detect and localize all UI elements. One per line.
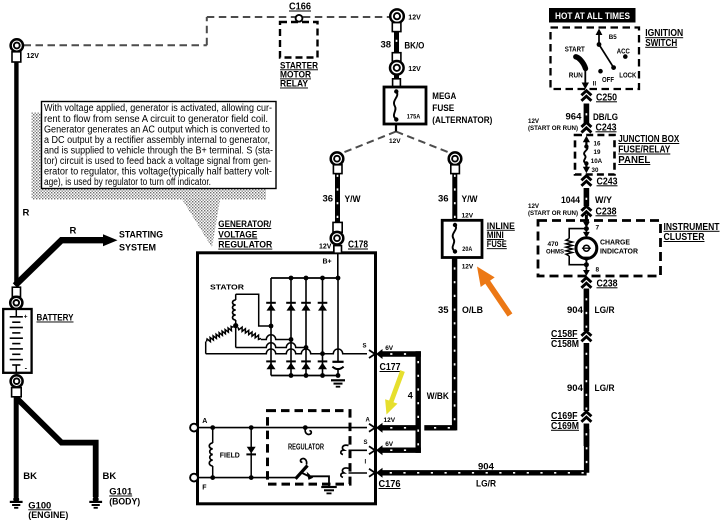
svg-text:(ENGINE): (ENGINE) [28, 510, 68, 521]
svg-text:REGULATOR: REGULATOR [288, 442, 324, 451]
svg-text:1044: 1044 [561, 195, 581, 206]
svg-text:C250: C250 [596, 92, 617, 103]
svg-text:(START OR RUN): (START OR RUN) [528, 125, 578, 132]
svg-text:LOCK: LOCK [619, 72, 636, 79]
svg-text:12V: 12V [408, 15, 421, 22]
svg-text:LG/R: LG/R [476, 478, 496, 489]
svg-text:STATOR: STATOR [210, 283, 245, 292]
svg-text:S: S [364, 440, 368, 446]
svg-text:(BODY): (BODY) [109, 496, 140, 507]
svg-text:C176: C176 [379, 479, 401, 490]
svg-text:With voltage applied, generato: With voltage applied, generator is activ… [44, 103, 272, 114]
svg-text:MEGA: MEGA [432, 91, 456, 102]
svg-text:+: + [24, 313, 28, 320]
svg-text:JUNCTION BOX: JUNCTION BOX [618, 134, 679, 145]
svg-text:30: 30 [592, 167, 599, 174]
svg-text:7: 7 [596, 225, 600, 232]
svg-text:II: II [593, 81, 597, 87]
svg-text:OFF: OFF [602, 77, 615, 84]
svg-text:35: 35 [438, 305, 449, 316]
svg-text:4: 4 [408, 391, 413, 401]
svg-text:C178: C178 [348, 240, 368, 251]
svg-text:R: R [23, 208, 30, 219]
svg-text:C169M: C169M [551, 421, 579, 432]
svg-text:12V: 12V [389, 138, 401, 145]
svg-text:10A: 10A [591, 158, 603, 165]
svg-text:(ALTERNATOR): (ALTERNATOR) [432, 115, 492, 126]
svg-text:rent to flow from sense A circ: rent to flow from sense A circuit to gen… [44, 114, 268, 125]
svg-text:(START OR RUN): (START OR RUN) [528, 210, 578, 217]
svg-text:904: 904 [567, 305, 584, 316]
svg-text:BK: BK [23, 471, 37, 482]
svg-text:FUSE: FUSE [487, 239, 507, 250]
svg-text:904: 904 [567, 383, 584, 394]
svg-text:C243: C243 [597, 176, 618, 187]
svg-text:12V: 12V [528, 203, 540, 210]
svg-text:12V: 12V [462, 263, 474, 270]
svg-text:12V: 12V [408, 66, 421, 73]
svg-text:LG/R: LG/R [595, 383, 615, 394]
svg-text:W/BK: W/BK [427, 391, 449, 402]
svg-text:LG/R: LG/R [595, 305, 615, 316]
svg-text:12V: 12V [462, 212, 474, 219]
svg-text:12V: 12V [319, 244, 332, 251]
svg-text:12V: 12V [384, 417, 396, 424]
svg-text:BATTERY: BATTERY [37, 313, 75, 324]
svg-text:R: R [70, 226, 77, 237]
svg-text:38: 38 [381, 39, 392, 50]
svg-text:ACC: ACC [617, 48, 630, 55]
svg-text:470: 470 [548, 241, 559, 248]
svg-text:175A: 175A [407, 114, 421, 121]
svg-text:964: 964 [566, 111, 583, 122]
svg-text:SWITCH: SWITCH [645, 38, 677, 49]
svg-text:REGULATOR: REGULATOR [218, 240, 272, 251]
svg-text:20A: 20A [462, 246, 472, 253]
svg-text:INDICATOR: INDICATOR [600, 248, 638, 255]
svg-text:12V: 12V [27, 53, 40, 60]
svg-text:A: A [366, 417, 371, 423]
svg-text:START: START [565, 47, 586, 54]
svg-text:Generator generates an AC outp: Generator generates an AC output which i… [44, 124, 271, 135]
svg-text:BK/O: BK/O [404, 40, 424, 51]
svg-text:8: 8 [596, 267, 600, 274]
svg-text:O/LB: O/LB [462, 305, 483, 316]
svg-text:RUN: RUN [569, 72, 583, 79]
svg-text:PANEL: PANEL [618, 155, 650, 166]
svg-text:36: 36 [438, 194, 449, 205]
svg-text:tor) circuit is used to feed b: tor) circuit is used to feed back a volt… [44, 156, 271, 167]
svg-text:C177: C177 [380, 362, 401, 373]
svg-text:B5: B5 [609, 34, 617, 41]
svg-text:DB/LG: DB/LG [593, 112, 618, 123]
svg-text:erator to regulator, this vol: erator to regulator, this voltage(typica… [44, 167, 272, 178]
svg-text:S: S [363, 344, 367, 350]
svg-text:C238: C238 [596, 206, 617, 217]
svg-text:6V: 6V [385, 345, 394, 352]
svg-text:FUSE: FUSE [432, 103, 454, 114]
svg-text:HOT AT ALL TIMES: HOT AT ALL TIMES [555, 11, 630, 21]
svg-text:B+: B+ [323, 259, 332, 266]
svg-text:Y/W: Y/W [345, 194, 361, 205]
svg-text:CLUSTER: CLUSTER [664, 232, 706, 243]
svg-text:36: 36 [323, 194, 334, 205]
svg-text:C238: C238 [597, 278, 618, 289]
svg-text:STARTING: STARTING [119, 230, 163, 241]
svg-text:Y/W: Y/W [462, 194, 478, 205]
svg-text:A: A [202, 418, 207, 425]
svg-text:age), is used by regulator to: age), is used by regulator to turn off i… [44, 177, 211, 188]
svg-text:6V: 6V [385, 441, 394, 448]
svg-text:SYSTEM: SYSTEM [119, 243, 156, 254]
svg-text:C166: C166 [289, 2, 311, 13]
svg-text:C243: C243 [596, 122, 617, 133]
svg-text:CHARGE: CHARGE [600, 239, 630, 246]
svg-text:a DC output by a rectifier ass: a DC output by a rectifier assembly inte… [44, 135, 270, 146]
svg-text:16: 16 [594, 140, 601, 147]
svg-text:FIELD: FIELD [220, 450, 241, 459]
svg-text:12V: 12V [528, 118, 540, 125]
svg-text:OHMS: OHMS [546, 248, 565, 255]
svg-text:C158M: C158M [551, 339, 579, 350]
svg-text:BK: BK [103, 471, 117, 482]
svg-text:F: F [202, 485, 207, 492]
svg-text:and is supplied to vehicle thr: and is supplied to vehicle through the B… [44, 146, 273, 157]
svg-text:19: 19 [594, 149, 601, 156]
svg-text:FUSE/RELAY: FUSE/RELAY [618, 145, 670, 156]
svg-text:W/Y: W/Y [595, 195, 613, 206]
svg-text:904: 904 [478, 462, 495, 473]
svg-text:RELAY: RELAY [280, 79, 309, 90]
